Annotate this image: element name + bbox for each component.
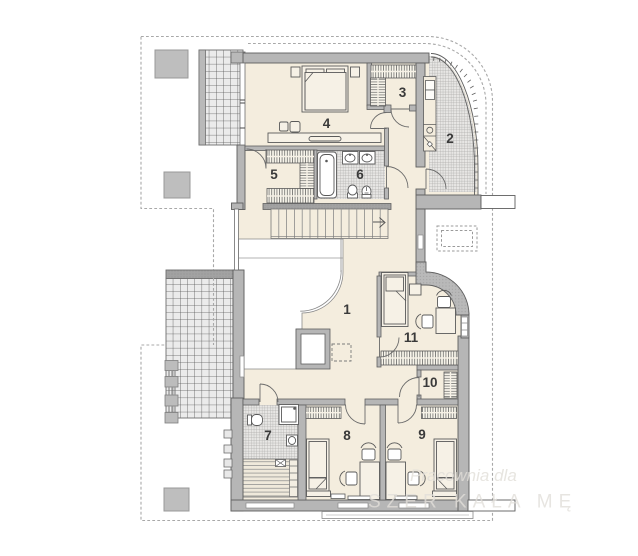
svg-text:8: 8 <box>343 428 351 443</box>
svg-text:Pracownia dla: Pracownia dla <box>410 466 517 485</box>
svg-text:SZER KAŁA MĘ: SZER KAŁA MĘ <box>368 492 577 513</box>
svg-text:5: 5 <box>270 167 278 182</box>
svg-text:2: 2 <box>446 131 454 146</box>
svg-text:11: 11 <box>404 330 419 345</box>
svg-text:3: 3 <box>399 85 407 100</box>
svg-text:4: 4 <box>323 116 331 131</box>
svg-text:9: 9 <box>418 427 426 442</box>
svg-text:6: 6 <box>356 167 364 182</box>
svg-text:1: 1 <box>343 302 351 317</box>
svg-text:7: 7 <box>264 428 272 443</box>
svg-text:10: 10 <box>422 375 437 390</box>
